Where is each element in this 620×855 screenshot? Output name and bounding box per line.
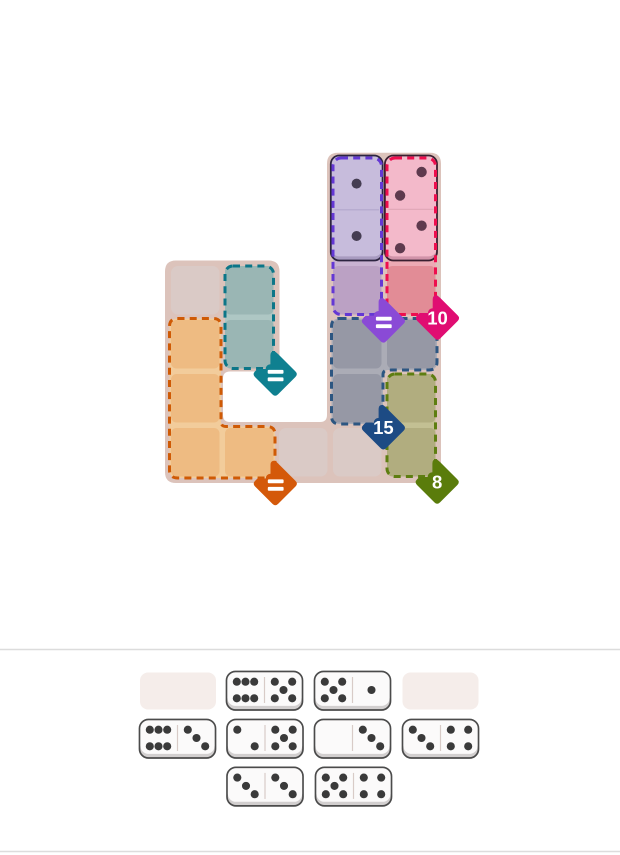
svg-text:10: 10 <box>427 307 448 328</box>
svg-text:15: 15 <box>373 417 394 438</box>
svg-text:8: 8 <box>432 471 442 492</box>
